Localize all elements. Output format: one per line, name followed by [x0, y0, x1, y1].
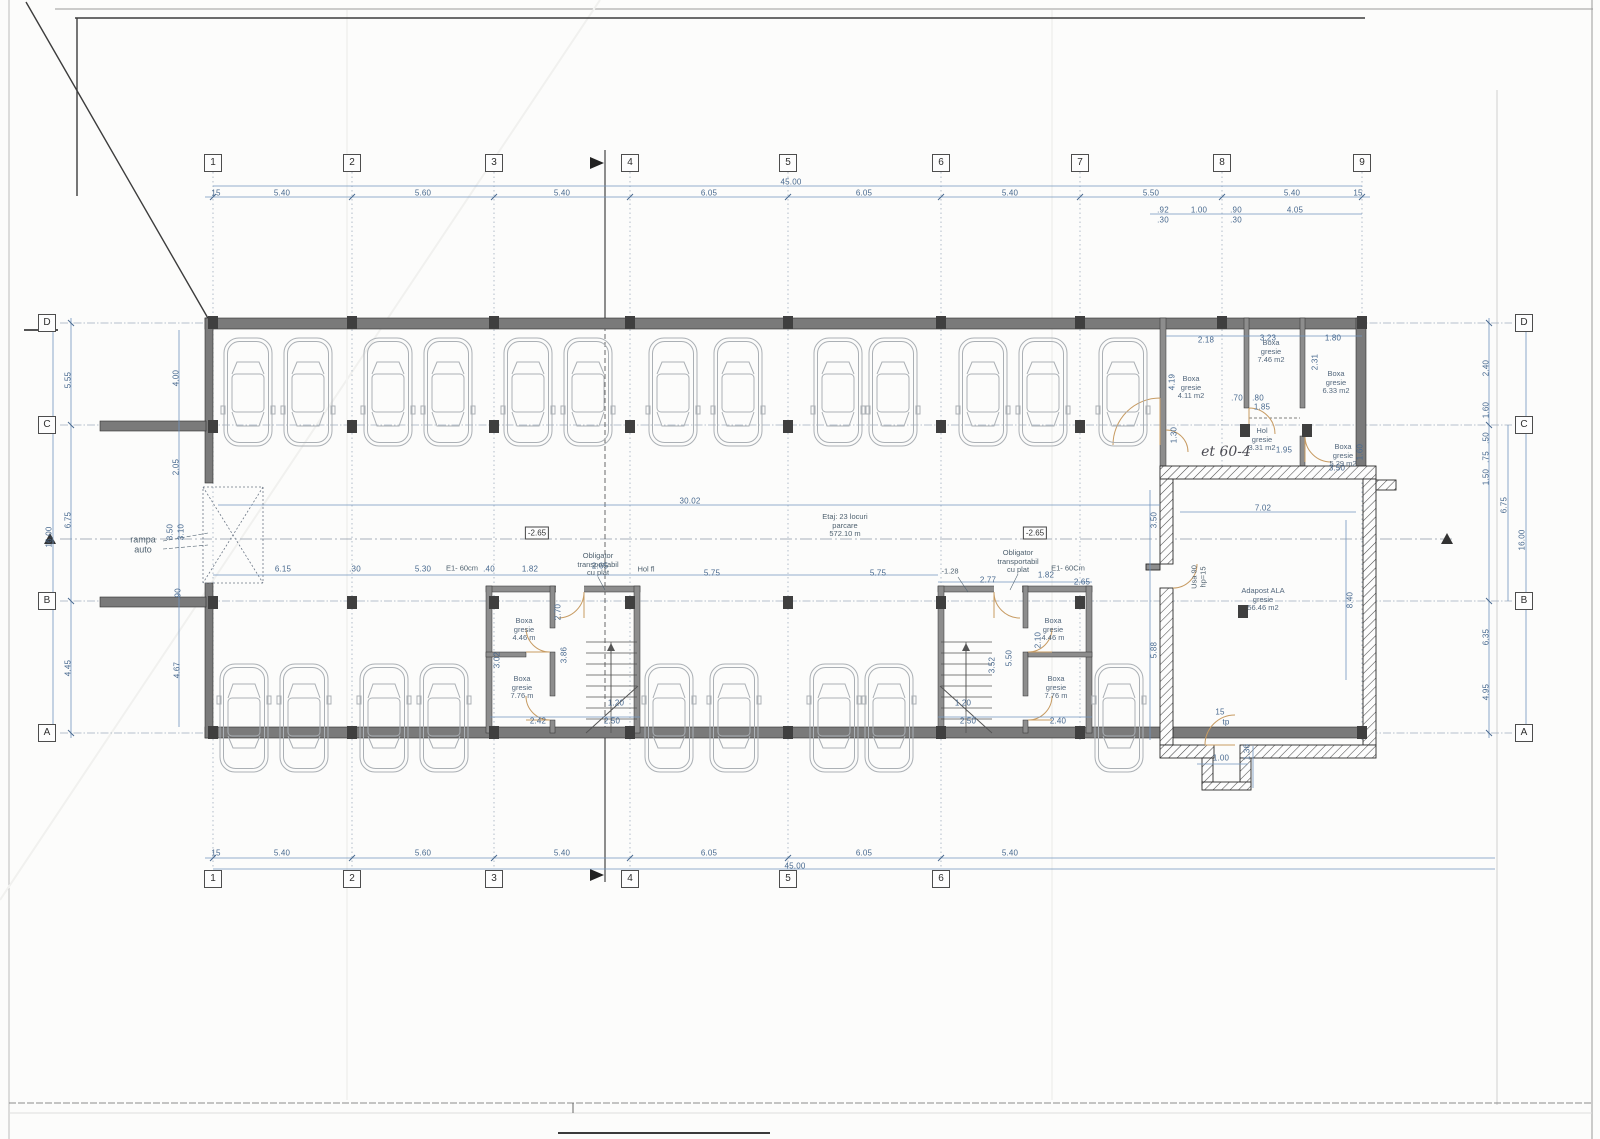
dimension-label: 5.60 — [415, 848, 431, 857]
grid-bubble: 4 — [621, 154, 639, 172]
annotation-note: Hol fl — [637, 566, 654, 575]
dimension-label: 6.05 — [856, 188, 872, 197]
stair-block-right — [938, 584, 1092, 733]
dimension-label: 1.20 — [955, 698, 971, 707]
structural-grid — [60, 172, 1512, 868]
grid-bubble: 6 — [932, 154, 950, 172]
dimension-label: 16.00 — [44, 526, 53, 547]
dimension-label: 2.42 — [530, 716, 546, 725]
dimension-label: 5.30 — [415, 564, 431, 573]
grid-bubble: 8 — [1213, 154, 1231, 172]
room-label: Adapost ALA gresie 56.46 m2 — [1241, 587, 1284, 613]
ramp-landing — [203, 487, 263, 583]
annotation-note: -1.28 — [941, 568, 958, 577]
dimension-label: .40 — [483, 564, 495, 573]
dimension-label: 3.52 — [987, 657, 996, 673]
dimension-label: 2.18 — [1198, 335, 1214, 344]
room-label: Boxa gresie 7.76 m — [1045, 675, 1068, 701]
dimension-label: 6.75 — [63, 512, 72, 528]
grid-bubble: D — [38, 314, 56, 332]
dimension-label: .70 — [1231, 393, 1243, 402]
handwritten-note: et 60-4 — [1201, 444, 1251, 460]
grid-bubble: D — [1515, 314, 1533, 332]
dimension-label: 1.95 — [1276, 445, 1292, 454]
dimension-label: 6.05 — [701, 188, 717, 197]
dimension-label: tp — [1222, 717, 1229, 726]
elevation-mark: -2.65 — [1023, 527, 1047, 540]
dimension-label: 5.40 — [1002, 188, 1018, 197]
dimension-label: 1.60 — [1481, 402, 1490, 418]
dimension-label: 1.20 — [608, 698, 624, 707]
dimension-label: 3.86 — [559, 647, 568, 663]
room-label: Boxa gresie 5.29 m2 — [1329, 443, 1356, 469]
dimension-label: 5.40 — [554, 848, 570, 857]
dimension-label: 16.00 — [1517, 529, 1526, 550]
dimension-label: 1.36 — [1242, 744, 1251, 760]
dimension-label: 8.40 — [1345, 592, 1354, 608]
dimension-label: 7.02 — [1255, 503, 1271, 512]
grid-bubble: A — [1515, 724, 1533, 742]
dimension-label: 1.50 — [1481, 469, 1490, 485]
dimension-label: 45.00 — [784, 861, 805, 870]
dimension-label: 2.40 — [1481, 360, 1490, 376]
grid-bubble: C — [1515, 416, 1533, 434]
grid-bubble: B — [1515, 592, 1533, 610]
dimension-label: 6.35 — [1481, 629, 1490, 645]
dimension-label: 5.60 — [415, 188, 431, 197]
dimension-label: .75 — [1481, 451, 1490, 463]
room-label: Boxa gresie 7.76 m — [511, 675, 534, 701]
grid-bubble: C — [38, 416, 56, 434]
dimension-label: 3.02 — [492, 652, 501, 668]
dimension-label: .30 — [1157, 215, 1169, 224]
dimension-label: .92 — [1157, 205, 1169, 214]
room-label: Boxa gresie 6.33 m2 — [1322, 370, 1349, 396]
dimension-label: 4.67 — [172, 662, 181, 678]
dimension-label: 4.95 — [1481, 684, 1490, 700]
room-label: Boxa gresie 4.11 m2 — [1178, 375, 1205, 401]
room-label: Boxa gresie 7.46 m2 — [1257, 339, 1284, 365]
dimension-label: 5.75 — [704, 568, 720, 577]
dimension-label: 2.70 — [553, 604, 562, 620]
dimension-label: .90 — [1230, 205, 1242, 214]
grid-bubble: 2 — [343, 870, 361, 888]
dimension-label: 3.10 — [176, 524, 185, 540]
dimension-label: .30 — [1230, 215, 1242, 224]
dimension-label: 5.40 — [1002, 848, 1018, 857]
dimension-label: 1.30 — [1169, 427, 1178, 443]
dimension-label: 1.00 — [1191, 205, 1207, 214]
dimension-label: 2.40 — [1050, 716, 1066, 725]
site-contour — [24, 2, 1365, 330]
grid-bubble: A — [38, 724, 56, 742]
dimension-label: 1.80 — [1325, 333, 1341, 342]
dimension-label: .30 — [349, 564, 361, 573]
room-label: Boxa gresie 4.46 m — [1042, 617, 1065, 643]
dimension-label: 3.50 — [1149, 512, 1158, 528]
grid-bubble: 5 — [779, 870, 797, 888]
annotation-note: E1- 60cm — [446, 565, 478, 574]
grid-bubble: B — [38, 592, 56, 610]
dimension-label: 5.40 — [1284, 188, 1300, 197]
dimension-label: 1.00 — [1213, 753, 1229, 762]
dimension-label: 1.60 — [1355, 444, 1364, 460]
dimension-label: 4.19 — [1167, 374, 1176, 390]
grid-bubble: 2 — [343, 154, 361, 172]
dimension-label: 4.45 — [63, 660, 72, 676]
walls-ala-shelter — [1146, 466, 1396, 790]
dimension-label: .90 — [173, 588, 182, 600]
grid-bubble: 6 — [932, 870, 950, 888]
dimension-label: 4.05 — [1287, 205, 1303, 214]
dimension-label: 2.65 — [1074, 577, 1090, 586]
dimension-label: 1.82 — [522, 564, 538, 573]
elevation-mark: -2.65 — [525, 527, 549, 540]
dimension-label: 5.40 — [274, 848, 290, 857]
grid-bubble: 5 — [779, 154, 797, 172]
dimension-label: .50 — [1481, 432, 1490, 444]
obligator-note-right: Obligator transportabil cu plat — [997, 549, 1038, 575]
dimension-label: 2.50 — [604, 716, 620, 725]
dimension-label: 15 — [1353, 188, 1362, 197]
dimension-label: 5.55 — [63, 372, 72, 388]
dimension-label: 3.50 — [165, 524, 174, 540]
room-label: Hol gresie 3.31 m2 — [1248, 427, 1275, 453]
annotation-note: Usa 90 hp=15 — [1190, 565, 1207, 589]
annotation-note: E1- 60Cm — [1051, 565, 1085, 574]
obligator-note-left: Obligator transportabil cu plat — [577, 552, 618, 578]
dimension-label: 2.77 — [980, 575, 996, 584]
dimension-label: 6.15 — [275, 564, 291, 573]
dimension-label: 15 — [1215, 707, 1224, 716]
dimension-label: 15 — [211, 188, 220, 197]
dimension-label: 5.40 — [274, 188, 290, 197]
ramp-label: rampa auto — [130, 535, 156, 556]
dimension-label: 30.02 — [679, 496, 700, 505]
dimension-label: 5.88 — [1149, 642, 1158, 658]
dimension-label: 5.40 — [554, 188, 570, 197]
dimension-label: 6.05 — [856, 848, 872, 857]
axis-markers — [44, 533, 1453, 544]
grid-bubble: 7 — [1071, 154, 1089, 172]
dimension-label: 5.50 — [1143, 188, 1159, 197]
grid-bubble: 3 — [485, 154, 503, 172]
dimension-label: 1.85 — [1254, 402, 1270, 411]
room-label: Boxa gresie 4.46 m — [513, 617, 536, 643]
grid-bubble: 1 — [204, 154, 222, 172]
dimension-label: 2.31 — [1310, 354, 1319, 370]
dimension-label: 6.05 — [701, 848, 717, 857]
dimension-label: 45.00 — [780, 177, 801, 186]
dimension-lines — [53, 186, 1526, 869]
dimension-label: 2.50 — [960, 716, 976, 725]
dimension-label: 5.50 — [1004, 650, 1013, 666]
grid-bubble: 1 — [204, 870, 222, 888]
grid-bubble: 3 — [485, 870, 503, 888]
floor-plan-sheet: 123456789123456DCBADCBA 155.405.605.406.… — [0, 0, 1600, 1139]
dimension-label: .80 — [1252, 393, 1264, 402]
dimension-label: 6.75 — [1499, 497, 1508, 513]
grid-bubble: 9 — [1353, 154, 1371, 172]
dimension-label: 5.75 — [870, 568, 886, 577]
section-line — [590, 150, 605, 882]
dimension-label: 4.00 — [171, 370, 180, 386]
dimension-label: 2.05 — [171, 459, 180, 475]
dimension-label: 15 — [211, 848, 220, 857]
parking-count-label: Etaj: 23 locuri parcare 572.10 m — [822, 513, 867, 539]
grid-bubble: 4 — [621, 870, 639, 888]
